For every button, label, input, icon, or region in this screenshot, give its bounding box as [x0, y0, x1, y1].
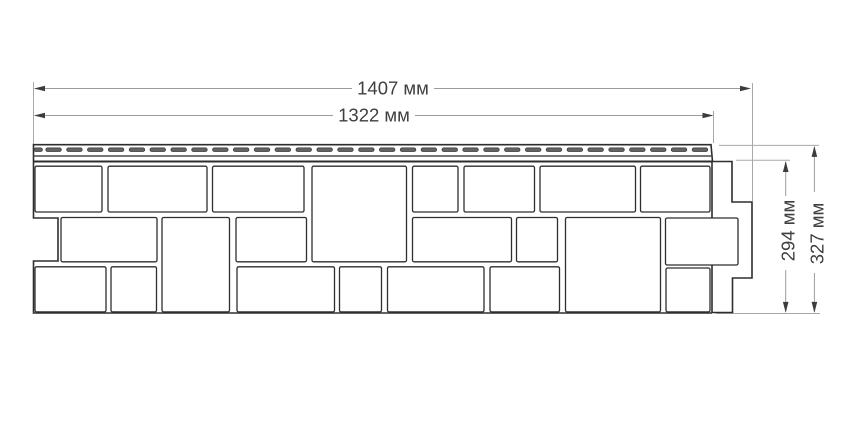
svg-text:327 мм: 327 мм	[806, 203, 827, 264]
svg-text:1322 мм: 1322 мм	[338, 105, 410, 126]
svg-text:1407 мм: 1407 мм	[357, 78, 429, 99]
svg-text:294 мм: 294 мм	[778, 200, 799, 261]
